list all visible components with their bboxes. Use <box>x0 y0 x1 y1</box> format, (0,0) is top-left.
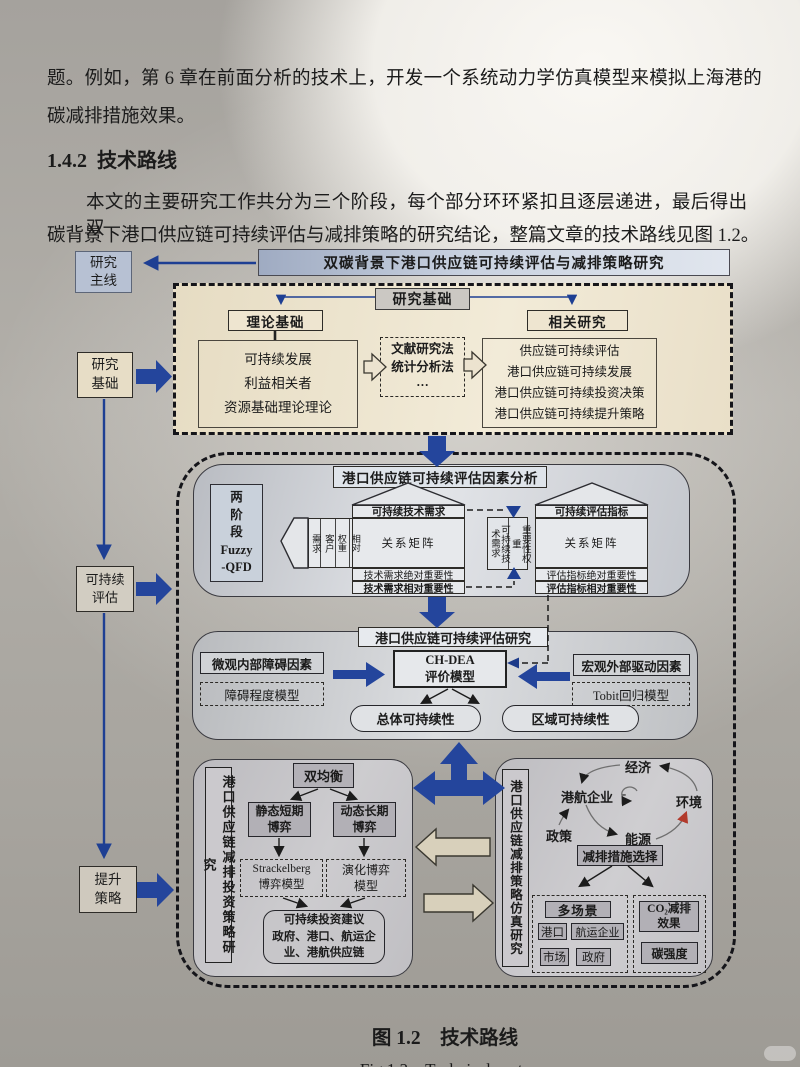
stackelberg-model-box: Strackelberg 博弈模型 <box>240 859 323 897</box>
loop-environment-label: 环境 <box>674 792 704 811</box>
micro-barrier-box: 微观内部障碍因素 <box>200 652 324 674</box>
house1-pentagon-label: 相关 矩阵 <box>284 528 308 554</box>
house1-left-wall: 需求 客户 权重 相对 <box>308 518 352 568</box>
stage-box-evaluation: 可持续 评估 <box>76 566 134 612</box>
watermark-badge <box>764 1046 796 1061</box>
dual-equilibrium-box: 双均衡 <box>293 763 354 788</box>
figure-caption-cn: 图 1.2 技术路线 <box>100 1021 790 1050</box>
loop-minus-sign: - <box>618 786 630 802</box>
regional-sustainability-pill: 区域可持续性 <box>502 705 639 732</box>
house2-matrix: 关系矩阵 <box>535 518 648 568</box>
loop-economy-label: 经济 <box>621 757 655 776</box>
two-stage-fuzzy-qfd-box: 两 阶 段 Fuzzy -QFD <box>210 484 263 582</box>
stage-box-main-line: 研究 主线 <box>75 251 132 293</box>
macro-layer-label: 宏观层面 <box>434 838 487 855</box>
measure-selection-box: 减排措施选择 <box>577 845 663 866</box>
sidebar-fat-arrows <box>136 360 174 907</box>
house2-rel-importance: 评估指标相对重要性 <box>535 581 648 594</box>
investment-advice-box: 可持续投资建议 政府、港口、航运企 业、港航供应链 <box>263 910 385 964</box>
section-heading: 1.4.2 技术路线 <box>47 144 177 173</box>
multiscene-header-box: 多场景 <box>545 901 611 918</box>
evaluation-title-box: 港口供应链可持续评估研究 <box>358 627 548 647</box>
house1-wall-col: 客户 <box>321 519 336 567</box>
chdea-model-box: CH-DEA 评价模型 <box>393 650 507 688</box>
house1-wall-col: 相对 <box>350 519 363 567</box>
section-title: 技术路线 <box>97 150 177 172</box>
scene-government-box: 政府 <box>576 948 611 966</box>
body-para-line2: 碳背景下港口供应链可持续评估与减排策略的研究结论，整篇文章的技术路线见图 1.2… <box>47 221 767 247</box>
stage-box-strategy: 提升 策略 <box>79 866 137 913</box>
scene-port-box: 港口 <box>538 923 567 940</box>
carbon-intensity-box: 碳强度 <box>641 942 698 964</box>
dynamic-game-box: 动态长期 博弈 <box>333 802 396 837</box>
evolution-model-box: 演化博弈 模型 <box>326 859 406 897</box>
obstacle-model-box: 障碍程度模型 <box>200 682 324 706</box>
house1-rel-importance: 技术需求相对重要性 <box>352 581 465 594</box>
related-title-box: 相关研究 <box>527 310 628 331</box>
simulation-side-label: 港口供应链减排策略仿真研究 <box>502 769 529 967</box>
macro-driver-box: 宏观外部驱动因素 <box>573 654 690 676</box>
micro-layer-label: 微观层面 <box>426 894 479 911</box>
related-content-box: 供应链可持续评估 港口供应链可持续发展 港口供应链可持续投资决策 港口供应链可持… <box>482 338 657 428</box>
co2-effect-box: CO₂减排 效果 <box>639 901 699 932</box>
theory-content-box: 可持续发展 利益相关者 资源基础理论理论 <box>198 340 358 428</box>
bridge-importance-weight: 重要性权重 <box>509 518 529 569</box>
qfd-bridge-box: 可持续技术需求 重要性权重 <box>487 517 528 570</box>
diagram-title-bar: 双碳背景下港口供应链可持续评估与减排策略研究 <box>258 249 730 276</box>
loop-policy-label: 政策 <box>544 826 574 845</box>
house1-wall-col: 权重 <box>336 519 350 567</box>
stage-box-foundation: 研究 基础 <box>77 352 133 398</box>
theory-title-box: 理论基础 <box>228 310 323 331</box>
bridge-tech-requirements: 可持续技术需求 <box>488 518 509 569</box>
tobit-model-box: Tobit回归模型 <box>572 682 690 706</box>
house1-header: 可持续技术需求 <box>352 505 465 518</box>
section-number: 1.4.2 <box>47 150 87 172</box>
qfd-title-box: 港口供应链可持续评估因素分析 <box>333 466 547 488</box>
house2-header: 可持续评估指标 <box>535 505 648 518</box>
body-text-line1: 题。例如，第 6 章在前面分析的技术上，开发一个系统动力学仿真模型来模拟上海港的 <box>47 64 763 90</box>
house1-matrix: 关系矩阵 <box>352 518 465 568</box>
overall-sustainability-pill: 总体可持续性 <box>350 705 481 732</box>
loop-enterprise-label: 港航企业 <box>558 787 616 806</box>
scene-market-box: 市场 <box>540 948 569 966</box>
body-text-line2: 碳减排措施效果。 <box>47 102 763 128</box>
static-game-box: 静态短期 博弈 <box>248 802 311 837</box>
house1-wall-col: 需求 <box>309 519 321 567</box>
scene-shipping-box: 航运企业 <box>571 923 624 940</box>
methods-box: 文献研究法 统计分析法 ··· <box>380 337 465 397</box>
thesis-page: 题。例如，第 6 章在前面分析的技术上，开发一个系统动力学仿真模型来模拟上海港的… <box>0 0 800 1067</box>
figure-caption-en: Fig 1.2 Technical route <box>100 1055 790 1067</box>
foundation-header: 研究基础 <box>375 288 470 310</box>
investment-side-label: 港口供应链减排投资策略研究 <box>205 767 232 963</box>
